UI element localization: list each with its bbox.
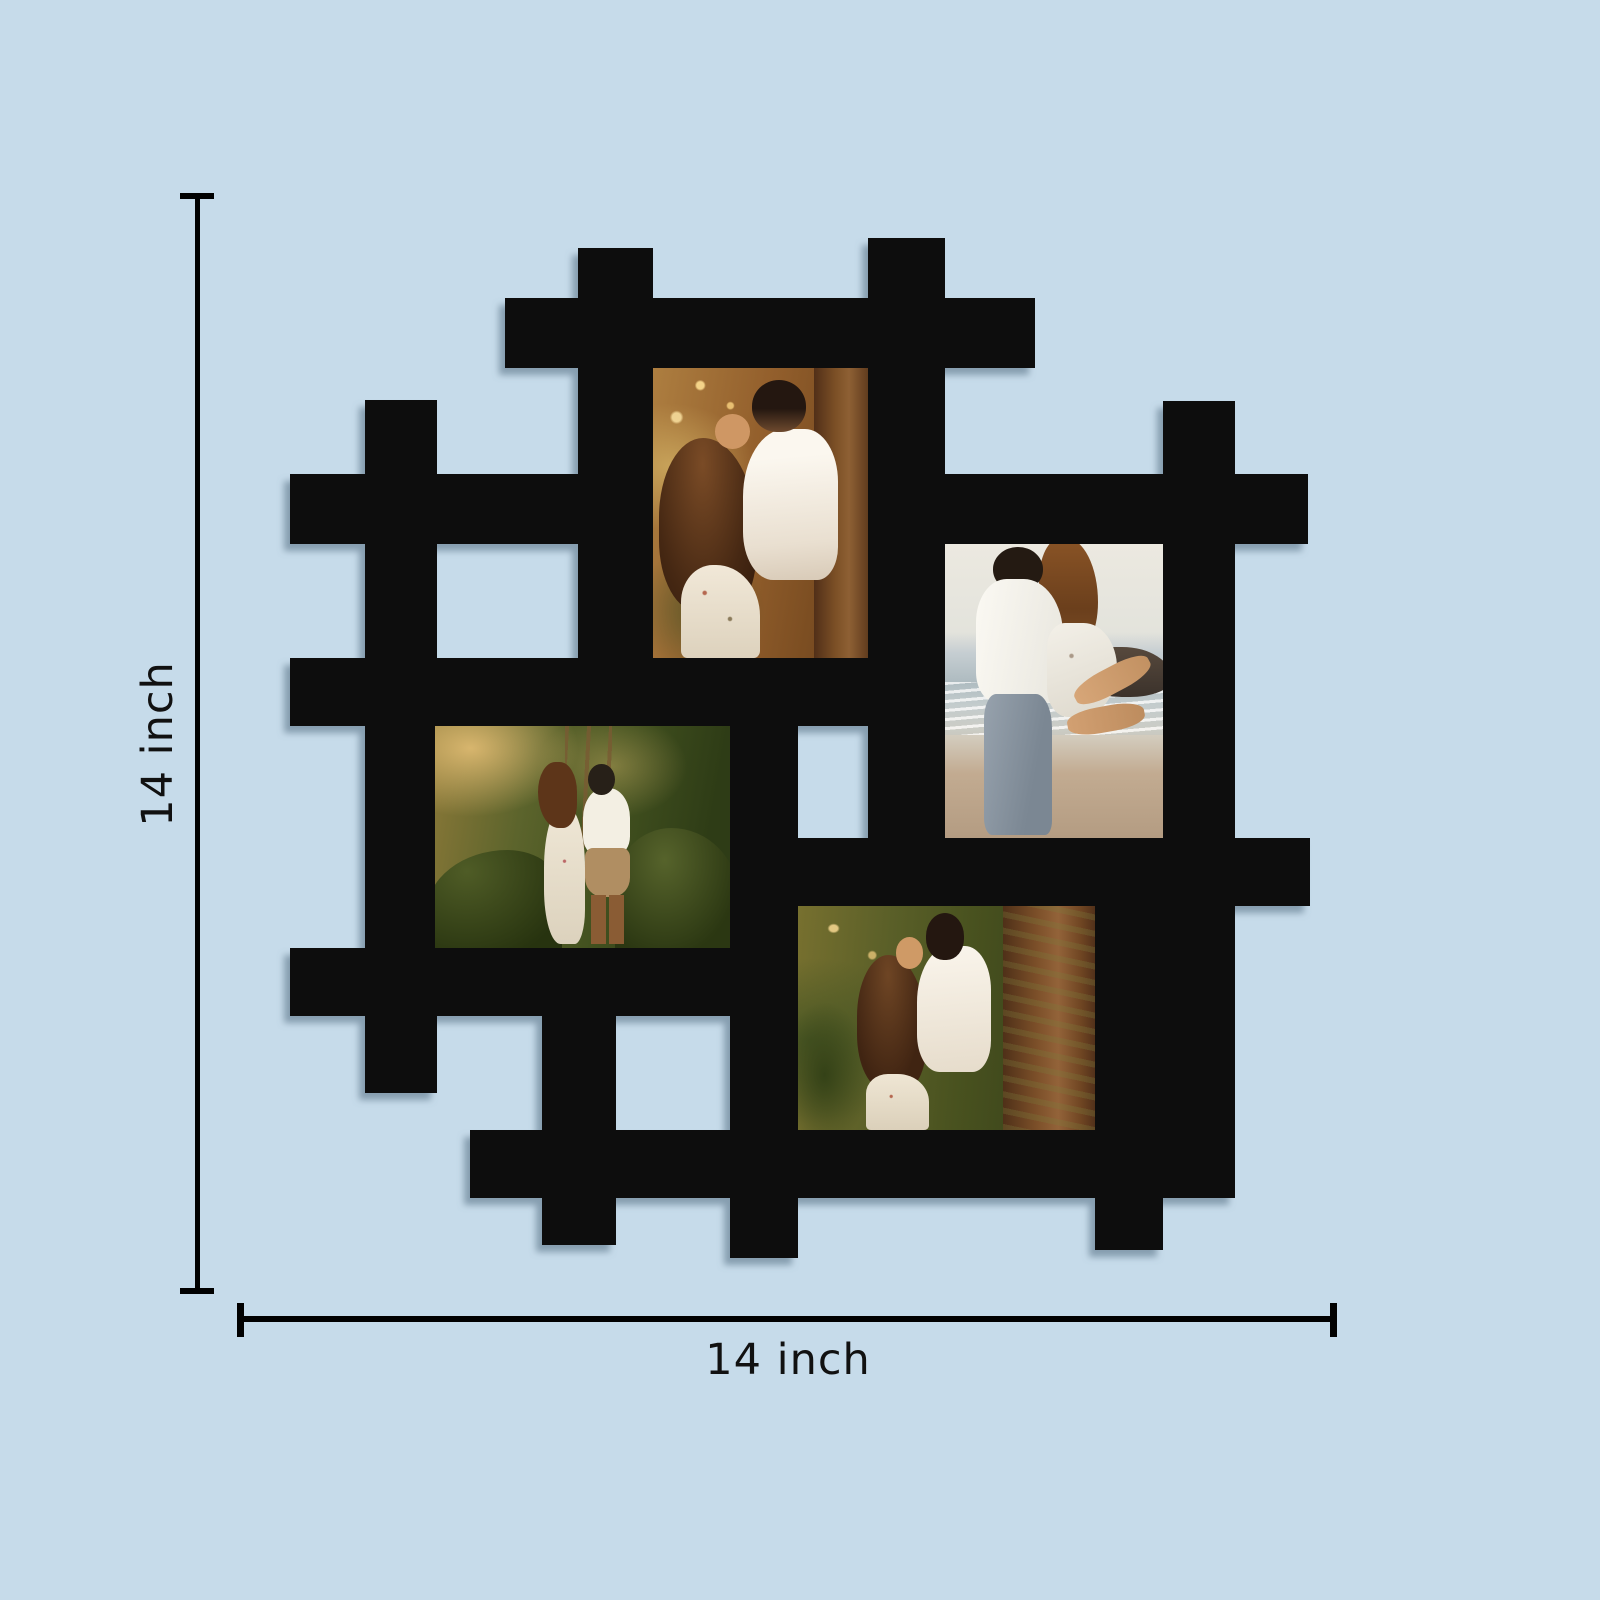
height-dimension-cap-top — [180, 193, 214, 199]
photo-detail-bush — [435, 850, 562, 948]
height-dimension-label: 14 inch — [132, 594, 184, 894]
photo-detail-man-shirt — [743, 429, 838, 580]
frame-bar-v-inner-right — [1095, 838, 1163, 1250]
photo-right-portrait — [945, 544, 1163, 838]
width-dimension-line — [240, 1316, 1336, 1322]
frame-bar-v-right — [1163, 401, 1235, 1198]
photo-detail-woman-face — [896, 937, 923, 968]
width-dimension-label: 14 inch — [638, 1334, 938, 1386]
frame-bar-v-center — [868, 238, 945, 906]
height-dimension-cap-bottom — [180, 1288, 214, 1294]
frame-bar-v-top-left — [578, 248, 653, 726]
photo-detail-man-legs — [591, 895, 623, 944]
photo-detail-woman-hair — [538, 762, 576, 829]
frame-bar-v-left — [365, 400, 437, 1093]
width-dimension-cap-right — [1330, 1303, 1337, 1337]
width-dimension-cap-left — [237, 1303, 244, 1337]
photo-detail-tree-trunk — [1003, 906, 1095, 1130]
height-dimension-line — [195, 196, 200, 1291]
photo-detail-bush — [615, 828, 730, 948]
photo-detail-man-head — [752, 380, 806, 432]
photo-left-landscape — [435, 726, 730, 948]
photo-detail-man-head — [926, 913, 965, 960]
photo-detail-man-shirt — [917, 946, 991, 1071]
product-image-canvas: 14 inch 14 inch — [0, 0, 1600, 1600]
photo-detail-man-head — [588, 764, 615, 795]
photo-top-portrait — [653, 368, 868, 658]
photo-detail-man-shirt — [583, 788, 630, 855]
photo-detail-woman-hair — [857, 955, 925, 1089]
frame-bar-v-bottom-left — [542, 1016, 616, 1245]
photo-bottom-landscape — [798, 906, 1095, 1130]
photo-detail-woman-face — [715, 414, 749, 449]
photo-detail-man-jeans — [984, 694, 1052, 835]
photo-detail-man-shorts — [585, 848, 629, 897]
frame-bar-v-mid — [730, 658, 798, 1258]
photo-detail-woman-dress — [866, 1074, 928, 1130]
